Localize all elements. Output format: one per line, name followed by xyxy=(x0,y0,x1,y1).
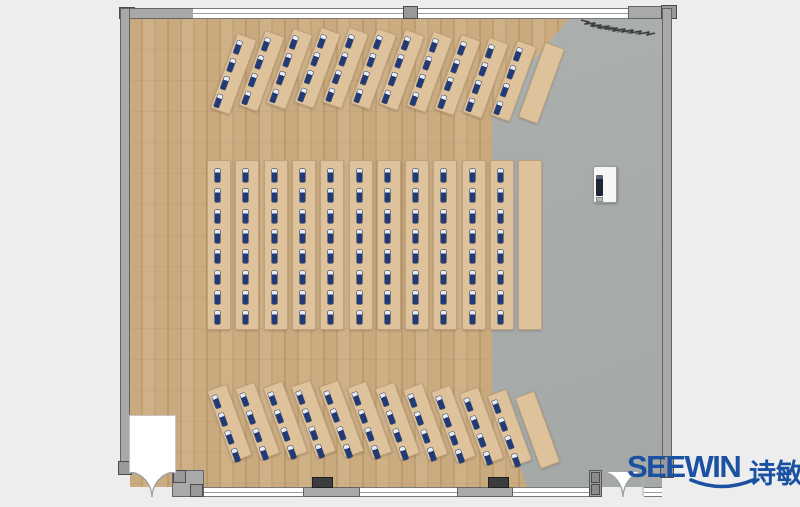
seat-monitor-mark xyxy=(300,291,305,304)
middle-desk-row[interactable] xyxy=(207,160,231,330)
seat-monitor-mark xyxy=(385,210,390,223)
seat-monitor-mark xyxy=(272,169,277,182)
seat-monitor-mark xyxy=(498,230,503,243)
seat-monitor-mark xyxy=(268,392,277,406)
seat-monitor-mark xyxy=(373,35,382,49)
seat-monitor-mark xyxy=(315,444,324,458)
seat-monitor-mark xyxy=(317,34,326,48)
seat-monitor-mark xyxy=(438,95,447,109)
seat-monitor-mark xyxy=(429,38,438,52)
seat-monitor-mark xyxy=(470,271,475,284)
seat-monitor-mark xyxy=(272,250,277,263)
seat-monitor-mark xyxy=(470,210,475,223)
seat-monitor-mark xyxy=(272,210,277,223)
middle-desk-row[interactable] xyxy=(292,160,316,330)
door-post-right xyxy=(589,470,602,497)
middle-desk-row[interactable] xyxy=(320,160,344,330)
seat-monitor-mark xyxy=(498,210,503,223)
seat-monitor-mark xyxy=(270,89,279,103)
seat-monitor-mark xyxy=(225,430,234,444)
seat-monitor-mark xyxy=(215,311,220,324)
seat-monitor-mark xyxy=(382,90,391,104)
seat-monitor-mark xyxy=(470,169,475,182)
seat-monitor-mark xyxy=(215,250,220,263)
seat-monitor-mark xyxy=(464,398,473,412)
seat-monitor-mark xyxy=(413,189,418,202)
seat-monitor-mark xyxy=(408,394,417,408)
seat-monitor-mark xyxy=(385,271,390,284)
seat-monitor-mark xyxy=(339,52,348,66)
seat-monitor-mark xyxy=(326,88,335,102)
seat-monitor-mark xyxy=(212,395,221,409)
seat-monitor-mark xyxy=(300,230,305,243)
seat-monitor-mark xyxy=(243,210,248,223)
middle-desk-row[interactable] xyxy=(433,160,457,330)
seat-monitor-mark xyxy=(498,311,503,324)
bottom-wall-segment-b xyxy=(457,487,513,497)
seat-monitor-mark xyxy=(243,189,248,202)
middle-desk-row[interactable] xyxy=(405,160,429,330)
seat-monitor-mark xyxy=(492,400,501,414)
seat-monitor-mark xyxy=(272,311,277,324)
seat-monitor-mark xyxy=(393,428,402,442)
seat-monitor-mark xyxy=(385,311,390,324)
seat-monitor-mark xyxy=(498,189,503,202)
screen-unit-display xyxy=(596,175,603,196)
seat-monitor-mark xyxy=(466,98,475,112)
entry-alcove xyxy=(129,415,176,473)
top-wall-mullion xyxy=(403,6,418,19)
middle-desk-row[interactable] xyxy=(349,160,373,330)
seat-monitor-mark xyxy=(243,250,248,263)
seat-monitor-mark xyxy=(360,71,369,85)
seat-monitor-mark xyxy=(385,169,390,182)
seat-monitor-mark xyxy=(441,189,446,202)
seat-monitor-mark xyxy=(436,396,445,410)
middle-desk-row[interactable] xyxy=(377,160,401,330)
seat-monitor-mark xyxy=(357,291,362,304)
seat-monitor-mark xyxy=(296,391,305,405)
seat-monitor-mark xyxy=(345,34,354,48)
right-wall xyxy=(662,8,672,460)
seat-monitor-mark xyxy=(441,311,446,324)
seat-monitor-mark xyxy=(401,36,410,50)
seat-monitor-mark xyxy=(243,169,248,182)
screen-unit-base xyxy=(596,197,603,202)
middle-desk-row[interactable] xyxy=(462,160,486,330)
seat-monitor-mark xyxy=(413,271,418,284)
seat-monitor-mark xyxy=(470,230,475,243)
seat-monitor-mark xyxy=(410,92,419,106)
floor-plan-canvas: SEEWIN 诗敏 xyxy=(0,0,800,507)
seat-monitor-mark xyxy=(300,169,305,182)
seat-monitor-mark xyxy=(498,169,503,182)
middle-desk-row[interactable] xyxy=(518,160,542,330)
seat-monitor-mark xyxy=(309,426,318,440)
seat-monitor-mark xyxy=(215,189,220,202)
seat-monitor-mark xyxy=(357,230,362,243)
seat-monitor-mark xyxy=(276,71,285,85)
seat-monitor-mark xyxy=(343,444,352,458)
seat-monitor-mark xyxy=(357,189,362,202)
seat-monitor-mark xyxy=(298,88,307,102)
seat-monitor-mark xyxy=(214,94,223,108)
seat-monitor-mark xyxy=(470,291,475,304)
seat-monitor-mark xyxy=(243,311,248,324)
seat-monitor-mark xyxy=(494,101,503,115)
top-window-left xyxy=(193,8,404,19)
seat-monitor-mark xyxy=(416,74,425,88)
seat-monitor-mark xyxy=(505,435,514,449)
seat-monitor-mark xyxy=(272,230,277,243)
seat-monitor-mark xyxy=(441,250,446,263)
seat-monitor-mark xyxy=(427,447,436,461)
seat-monitor-mark xyxy=(259,446,268,460)
bottom-window-c xyxy=(513,487,589,497)
seat-monitor-mark xyxy=(354,89,363,103)
seat-monitor-mark xyxy=(441,271,446,284)
seat-monitor-mark xyxy=(255,55,264,69)
seat-monitor-mark xyxy=(215,210,220,223)
seat-monitor-mark xyxy=(300,210,305,223)
seat-monitor-mark xyxy=(500,83,509,97)
seat-monitor-mark xyxy=(423,56,432,70)
seat-monitor-mark xyxy=(357,271,362,284)
bottom-window-a xyxy=(204,487,303,497)
top-window-right xyxy=(418,8,628,19)
seat-monitor-mark xyxy=(328,189,333,202)
seat-monitor-mark xyxy=(470,311,475,324)
seewin-logo: SEEWIN 诗敏 xyxy=(627,449,800,494)
seat-monitor-mark xyxy=(441,169,446,182)
seat-monitor-mark xyxy=(300,271,305,284)
seat-monitor-mark xyxy=(507,65,516,79)
seat-monitor-mark xyxy=(413,291,418,304)
seat-monitor-mark xyxy=(385,250,390,263)
seat-monitor-mark xyxy=(441,210,446,223)
seat-monitor-mark xyxy=(380,393,389,407)
seat-monitor-mark xyxy=(455,449,464,463)
screen-unit[interactable] xyxy=(593,166,617,203)
seat-monitor-mark xyxy=(274,410,283,424)
seat-monitor-mark xyxy=(511,453,520,467)
seat-monitor-mark xyxy=(324,391,333,405)
seat-monitor-mark xyxy=(328,230,333,243)
seat-monitor-mark xyxy=(240,393,249,407)
bottom-corner-cap-b xyxy=(190,484,203,497)
seat-monitor-mark xyxy=(441,291,446,304)
seat-monitor-mark xyxy=(441,230,446,243)
seat-monitor-mark xyxy=(358,410,367,424)
seat-monitor-mark xyxy=(388,72,397,86)
seat-monitor-mark xyxy=(371,445,380,459)
seat-monitor-mark xyxy=(357,250,362,263)
seat-monitor-mark xyxy=(328,250,333,263)
seat-monitor-mark xyxy=(385,291,390,304)
logo-text-cn: 诗敏 xyxy=(749,452,800,491)
seat-monitor-mark xyxy=(289,35,298,49)
seat-monitor-mark xyxy=(300,311,305,324)
seat-monitor-mark xyxy=(330,409,339,423)
seat-monitor-mark xyxy=(365,427,374,441)
seat-monitor-mark xyxy=(413,250,418,263)
seat-monitor-mark xyxy=(328,169,333,182)
seat-monitor-mark xyxy=(413,169,418,182)
seat-monitor-mark xyxy=(449,431,458,445)
seat-monitor-mark xyxy=(272,189,277,202)
seat-monitor-mark xyxy=(281,427,290,441)
seat-monitor-mark xyxy=(242,91,251,105)
seat-monitor-mark xyxy=(218,413,227,427)
seat-monitor-mark xyxy=(386,411,395,425)
seat-monitor-mark xyxy=(328,291,333,304)
seat-monitor-mark xyxy=(337,426,346,440)
seat-monitor-mark xyxy=(470,189,475,202)
seat-monitor-mark xyxy=(243,291,248,304)
seat-monitor-mark xyxy=(385,189,390,202)
seat-monitor-mark xyxy=(414,412,423,426)
seat-monitor-mark xyxy=(485,44,494,58)
seat-monitor-mark xyxy=(231,448,240,462)
seat-monitor-mark xyxy=(513,47,522,61)
seat-monitor-mark xyxy=(413,210,418,223)
seat-monitor-mark xyxy=(272,271,277,284)
seat-monitor-mark xyxy=(498,291,503,304)
bottom-wall-segment-a xyxy=(303,487,360,497)
seat-monitor-mark xyxy=(215,169,220,182)
seat-monitor-mark xyxy=(483,451,492,465)
seat-monitor-mark xyxy=(477,433,486,447)
middle-desk-row[interactable] xyxy=(235,160,259,330)
seat-monitor-mark xyxy=(215,230,220,243)
seat-monitor-mark xyxy=(246,411,255,425)
seat-monitor-mark xyxy=(399,446,408,460)
seat-monitor-mark xyxy=(498,250,503,263)
seat-monitor-mark xyxy=(300,250,305,263)
seat-monitor-mark xyxy=(287,445,296,459)
seat-monitor-mark xyxy=(367,53,376,67)
seat-monitor-mark xyxy=(328,210,333,223)
seat-monitor-mark xyxy=(220,76,229,90)
seat-monitor-mark xyxy=(283,53,292,67)
seat-monitor-mark xyxy=(352,392,361,406)
double-door-left[interactable] xyxy=(129,472,176,498)
seat-monitor-mark xyxy=(328,271,333,284)
seat-monitor-mark xyxy=(442,414,451,428)
seat-monitor-mark xyxy=(243,230,248,243)
seat-monitor-mark xyxy=(248,73,257,87)
seat-monitor-mark xyxy=(302,409,311,423)
left-wall xyxy=(120,8,130,472)
seat-monitor-mark xyxy=(233,40,242,54)
seat-monitor-mark xyxy=(261,37,270,51)
seat-monitor-mark xyxy=(413,311,418,324)
seat-monitor-mark xyxy=(421,429,430,443)
seat-monitor-mark xyxy=(413,230,418,243)
seat-monitor-mark xyxy=(451,59,460,73)
seat-monitor-mark xyxy=(243,271,248,284)
seat-monitor-mark xyxy=(357,311,362,324)
seat-monitor-mark xyxy=(472,80,481,94)
seat-monitor-mark xyxy=(332,70,341,84)
seat-monitor-mark xyxy=(304,70,313,84)
structural-column-left xyxy=(312,477,333,488)
seat-monitor-mark xyxy=(357,210,362,223)
seat-monitor-mark xyxy=(470,250,475,263)
seat-monitor-mark xyxy=(385,230,390,243)
seat-monitor-mark xyxy=(498,418,507,432)
seat-monitor-mark xyxy=(470,416,479,430)
seat-monitor-mark xyxy=(215,271,220,284)
middle-desk-row[interactable] xyxy=(264,160,288,330)
middle-desk-row[interactable] xyxy=(490,160,514,330)
logo-smile-arc xyxy=(688,478,756,493)
structural-column-right xyxy=(488,477,509,488)
seat-monitor-mark xyxy=(457,41,466,55)
seat-monitor-mark xyxy=(272,291,277,304)
top-wall-left-segment xyxy=(120,8,194,19)
bottom-window-b xyxy=(360,487,457,497)
seat-monitor-mark xyxy=(227,58,236,72)
seat-monitor-mark xyxy=(395,54,404,68)
seat-monitor-mark xyxy=(311,52,320,66)
seat-monitor-mark xyxy=(479,62,488,76)
seat-monitor-mark xyxy=(357,169,362,182)
seat-monitor-mark xyxy=(444,77,453,91)
seat-monitor-mark xyxy=(300,189,305,202)
seat-monitor-mark xyxy=(215,291,220,304)
seat-monitor-mark xyxy=(498,271,503,284)
seat-monitor-mark xyxy=(328,311,333,324)
seat-monitor-mark xyxy=(253,428,262,442)
